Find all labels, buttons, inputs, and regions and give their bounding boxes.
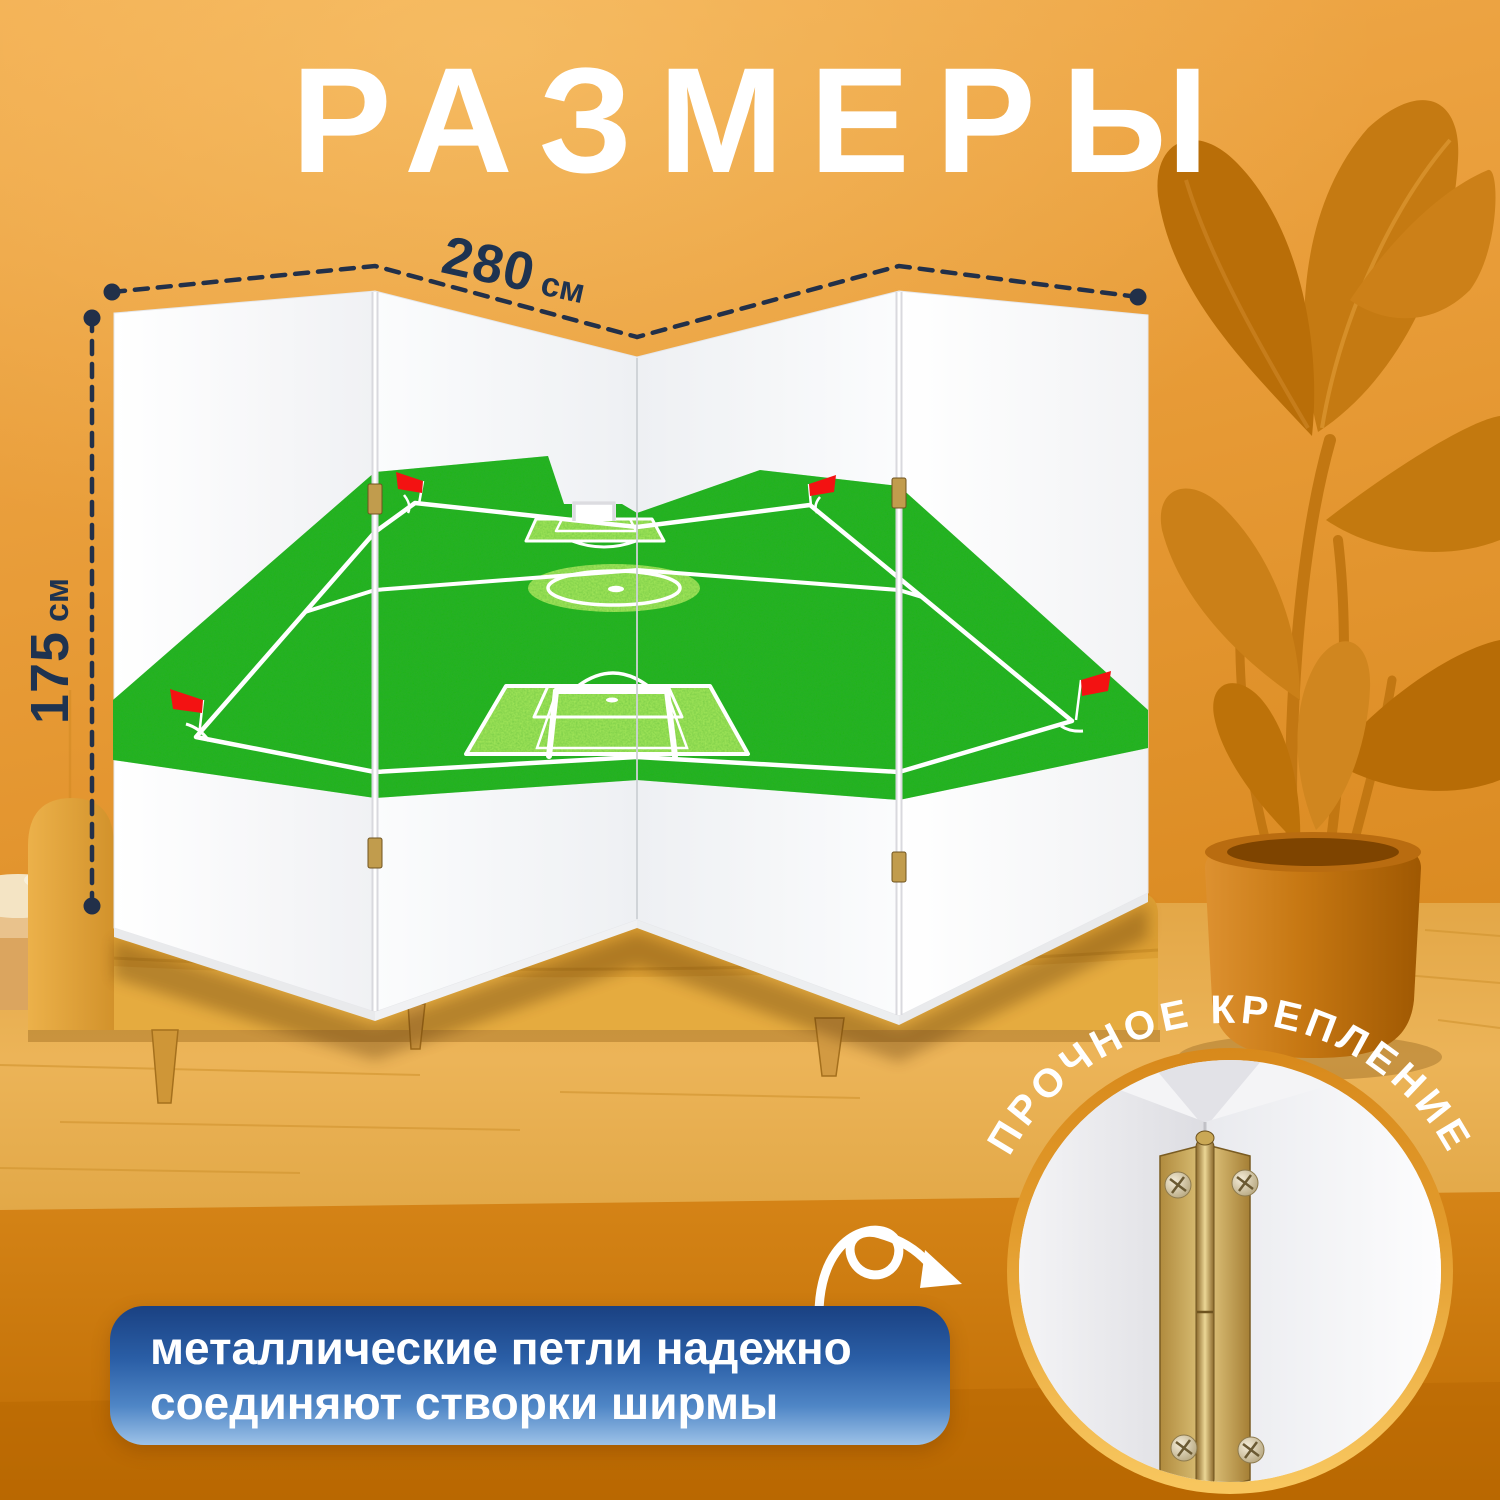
- height-unit: см: [38, 578, 76, 622]
- dimension-endpoint-dot: [84, 310, 101, 327]
- dimension-endpoint-dot: [84, 898, 101, 915]
- hinge: [892, 852, 906, 882]
- hinge-photo: [1160, 1131, 1264, 1490]
- height-dimension-label: 175см: [19, 539, 77, 763]
- callout-line-2: соединяют створки ширмы: [150, 1376, 950, 1431]
- far-goal: [572, 501, 616, 521]
- hinge-pin-finial: [1196, 1131, 1214, 1145]
- page-title: РАЗМЕРЫ: [0, 34, 1500, 207]
- callout-line-1: металлические петли надежно: [150, 1321, 950, 1376]
- height-value: 175: [20, 631, 80, 724]
- hinge: [368, 838, 382, 868]
- folding-screen: [113, 291, 1148, 1025]
- room-scene: ПРОЧНОЕ КРЕПЛЕНИЕ: [0, 0, 1500, 1500]
- callout-box: металлические петли надежно соединяют ст…: [110, 1306, 950, 1445]
- near-penalty-area: [466, 686, 748, 754]
- dimension-endpoint-dot: [104, 284, 121, 301]
- product-infographic: ПРОЧНОЕ КРЕПЛЕНИЕ РАЗМЕРЫ 280см 175см ме…: [0, 0, 1500, 1500]
- penalty-spot: [606, 698, 618, 703]
- center-spot: [608, 586, 624, 592]
- sofa-armrest: [28, 798, 114, 1030]
- hinge: [368, 484, 382, 514]
- dimension-endpoint-dot: [1130, 289, 1147, 306]
- hinge: [892, 478, 906, 508]
- width-unit: см: [537, 265, 588, 312]
